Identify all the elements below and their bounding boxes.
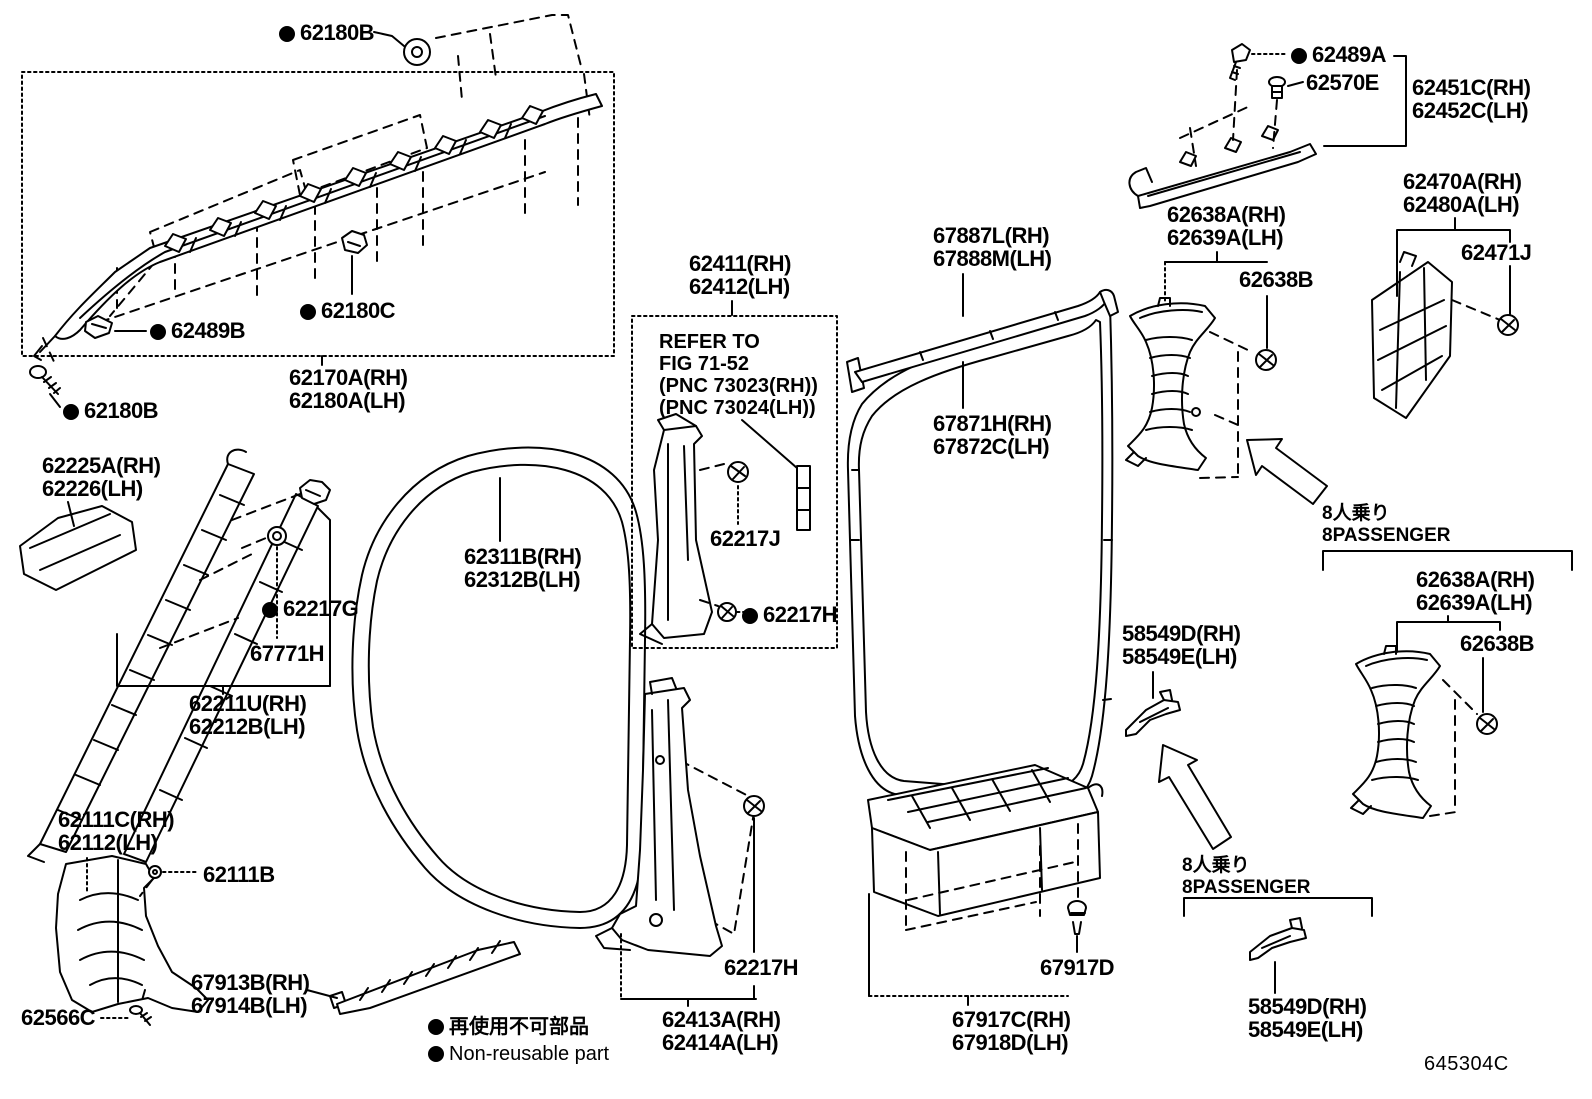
cowl-trim-62225a-drawing [20, 502, 136, 590]
bracket-8passenger-2 [1184, 898, 1372, 916]
part-label-62170a: 62170A(RH) 62180A(LH) [289, 366, 408, 412]
screw-62180b-lower [30, 366, 60, 407]
part-number-rh: 62470A(RH) [1403, 170, 1522, 193]
bracket-58549d-2-drawing [1250, 918, 1306, 993]
part-number-lh: 67888M(LH) [933, 247, 1051, 270]
part-number-lh: 62312B(LH) [464, 568, 581, 591]
part-label-67913b: 67913B(RH) 67914B(LH) [191, 971, 310, 1017]
part-number: 62217H [724, 955, 798, 980]
non-reusable-bullet-icon [428, 1019, 444, 1035]
part-number-lh: 62639A(LH) [1167, 226, 1286, 249]
part-number: 62217J [710, 526, 780, 551]
part-number-rh: 58549D(RH) [1122, 622, 1241, 645]
part-label-62489b: 62489B [150, 319, 245, 342]
part-label-67917c: 67917C(RH) 67918D(LH) [952, 1008, 1071, 1054]
part-number-lh: 62412(LH) [689, 275, 791, 298]
part-number-rh: 62170A(RH) [289, 366, 408, 389]
part-label-62638a-1: 62638A(RH) 62639A(LH) [1167, 203, 1286, 249]
retainer-strip-62217j [742, 420, 810, 530]
refer-line: (PNC 73023(RH)) [659, 375, 818, 397]
part-label-62180c: 62180C [300, 299, 395, 322]
non-reusable-bullet-icon [63, 404, 79, 420]
refer-line: (PNC 73024(LH)) [659, 397, 818, 419]
bracket-62638a-1 [1165, 252, 1267, 262]
figure-number: 645304C [1424, 1053, 1509, 1076]
part-number: 62570E [1306, 70, 1379, 95]
part-label-62111c: 62111C(RH) 62112(LH) [58, 808, 174, 854]
part-number-lh: 62452C(LH) [1412, 99, 1531, 122]
moulding-67887l-drawing [847, 290, 1118, 392]
pointer-arrow-2 [1159, 745, 1231, 849]
part-label-62217j: 62217J [710, 527, 780, 550]
part-number-lh: 62639A(LH) [1416, 591, 1535, 614]
part-label-58549d-1: 58549D(RH) 58549E(LH) [1122, 622, 1241, 668]
part-number-rh: 62111C(RH) [58, 808, 174, 831]
part-number-lh: 62180A(LH) [289, 389, 408, 412]
note-8passenger-1: 8人乗り 8PASSENGER [1322, 503, 1450, 547]
part-number-lh: 67914B(LH) [191, 994, 310, 1017]
part-number-rh: 58549D(RH) [1248, 995, 1367, 1018]
part-number: 67917D [1040, 955, 1114, 980]
part-label-67917d: 67917D [1040, 956, 1114, 979]
part-number-lh: 58549E(LH) [1248, 1018, 1367, 1041]
part-number-rh: 62225A(RH) [42, 454, 161, 477]
refer-note: REFER TO FIG 71-52 (PNC 73023(RH)) (PNC … [659, 331, 818, 419]
bracket-62413a [621, 999, 756, 1006]
part-label-62489a: 62489A [1291, 43, 1386, 66]
part-label-67771h: 67771H [250, 642, 324, 665]
part-number-rh: 67887L(RH) [933, 224, 1051, 247]
part-label-62638a-2: 62638A(RH) 62639A(LH) [1416, 568, 1535, 614]
part-number: 62217G [283, 596, 358, 621]
roof-trim-62451c-drawing [1129, 70, 1316, 208]
part-number: 62111B [203, 862, 275, 887]
part-number-rh: 62311B(RH) [464, 545, 581, 568]
part-number: 62566C [21, 1005, 95, 1030]
part-number-rh: 62638A(RH) [1416, 568, 1535, 591]
clip-62638b-1 [1256, 296, 1276, 370]
non-reusable-bullet-icon [428, 1046, 444, 1062]
part-number-rh: 67917C(RH) [952, 1008, 1071, 1031]
part-label-62180b-top: 62180B [279, 21, 374, 44]
non-reusable-bullet-icon [150, 324, 166, 340]
front-scuff-67913b-drawing [307, 941, 520, 1014]
part-label-67887l: 67887L(RH) 67888M(LH) [933, 224, 1051, 270]
cowl-side-trim-62111c-drawing [56, 856, 208, 1012]
part-label-62413a: 62413A(RH) 62414A(LH) [662, 1008, 781, 1054]
part-number: 67771H [250, 641, 324, 666]
non-reusable-bullet-icon [279, 26, 295, 42]
part-number-rh: 62211U(RH) [189, 692, 306, 715]
weatherstrip-67871h-drawing [848, 300, 1113, 805]
part-number-lh: 62112(LH) [58, 831, 174, 854]
part-label-62470a: 62470A(RH) 62480A(LH) [1403, 170, 1522, 216]
part-label-62411: 62411(RH) 62412(LH) [689, 252, 791, 298]
non-reusable-bullet-icon [262, 602, 278, 618]
part-number: 62217H [763, 602, 837, 627]
clip-62638b-2 [1477, 658, 1497, 734]
part-label-62225a: 62225A(RH) 62226(LH) [42, 454, 161, 500]
legend-en: Non-reusable part [428, 1041, 609, 1068]
clip-62180c [342, 231, 367, 294]
non-reusable-bullet-icon [300, 304, 316, 320]
part-label-62180b-2: 62180B [63, 399, 158, 422]
b-pillar-lower-garnish-62413a-drawing [596, 678, 756, 956]
part-label-62211u: 62211U(RH) 62212B(LH) [189, 692, 306, 738]
part-number-lh: 62414A(LH) [662, 1031, 781, 1054]
passenger-en: 8PASSENGER [1322, 525, 1450, 547]
part-number-lh: 62212B(LH) [189, 715, 306, 738]
legend-ja: 再使用不可部品 [428, 1014, 609, 1041]
part-number-rh: 62413A(RH) [662, 1008, 781, 1031]
part-number-rh: 62411(RH) [689, 252, 791, 275]
part-number: 62489A [1312, 42, 1386, 67]
part-number-lh: 62480A(LH) [1403, 193, 1522, 216]
rear-scuff-67917c-drawing [868, 765, 1102, 930]
part-label-62217h-box: 62217H [742, 603, 837, 626]
bolt-62489a [1230, 44, 1288, 80]
passenger-en: 8PASSENGER [1182, 877, 1310, 899]
part-label-62217g: 62217G [262, 597, 358, 620]
parts-diagram-page: 62180B 62489A 62570E 62451C(RH) 62452C(L… [0, 0, 1592, 1099]
part-label-62111b: 62111B [203, 863, 275, 886]
part-label-62217h-2: 62217H [724, 956, 798, 979]
part-number: 62180C [321, 298, 395, 323]
part-label-62471j: 62471J [1461, 241, 1531, 264]
grommet-62180b-top [374, 32, 430, 65]
passenger-ja: 8人乗り [1322, 503, 1450, 525]
part-number-lh: 58549E(LH) [1122, 645, 1241, 668]
part-number: 62638B [1460, 631, 1534, 656]
part-label-62566c: 62566C [21, 1006, 95, 1029]
part-number-rh: 62638A(RH) [1167, 203, 1286, 226]
quarter-pillar-62470a-drawing [1372, 252, 1500, 418]
part-label-62451c: 62451C(RH) 62452C(LH) [1412, 76, 1531, 122]
center-pillar-62638a-1-drawing [1126, 262, 1252, 478]
part-label-62311b: 62311B(RH) 62312B(LH) [464, 545, 581, 591]
pointer-arrow-1 [1247, 439, 1327, 504]
part-number-lh: 67872C(LH) [933, 435, 1052, 458]
part-label-67871h: 67871H(RH) 67872C(LH) [933, 412, 1052, 458]
part-number: 62489B [171, 318, 245, 343]
non-reusable-bullet-icon [1291, 48, 1307, 64]
diagram-line-art [0, 0, 1592, 1099]
part-number: 62180B [300, 20, 374, 45]
refer-line: REFER TO [659, 331, 818, 353]
part-label-62638b-1: 62638B [1239, 268, 1313, 291]
clip-62217j [728, 462, 748, 524]
center-pillar-62638a-2-drawing [1351, 646, 1477, 818]
grommet-62570e [1269, 77, 1303, 98]
note-8passenger-2: 8人乗り 8PASSENGER [1182, 855, 1310, 899]
refer-line: FIG 71-52 [659, 353, 818, 375]
part-number: 62180B [84, 398, 158, 423]
passenger-ja: 8人乗り [1182, 855, 1310, 877]
weatherstrip-62311b-drawing [352, 448, 645, 928]
clip-67917d [1068, 901, 1086, 952]
clip-62471j [1498, 266, 1518, 335]
non-reusable-bullet-icon [742, 608, 758, 624]
part-number: 62638B [1239, 267, 1313, 292]
part-label-62638b-2: 62638B [1460, 632, 1534, 655]
part-number-rh: 62451C(RH) [1412, 76, 1531, 99]
part-number-lh: 67918D(LH) [952, 1031, 1071, 1054]
part-number-lh: 62226(LH) [42, 477, 161, 500]
part-number-rh: 67913B(RH) [191, 971, 310, 994]
legend: 再使用不可部品 Non-reusable part [428, 1014, 609, 1068]
part-label-62570e: 62570E [1306, 71, 1379, 94]
part-number: 62471J [1461, 240, 1531, 265]
bracket-58549d-1-drawing [1126, 672, 1180, 736]
clip-62489b [85, 316, 146, 338]
part-number-rh: 67871H(RH) [933, 412, 1052, 435]
part-label-58549d-2: 58549D(RH) 58549E(LH) [1248, 995, 1367, 1041]
